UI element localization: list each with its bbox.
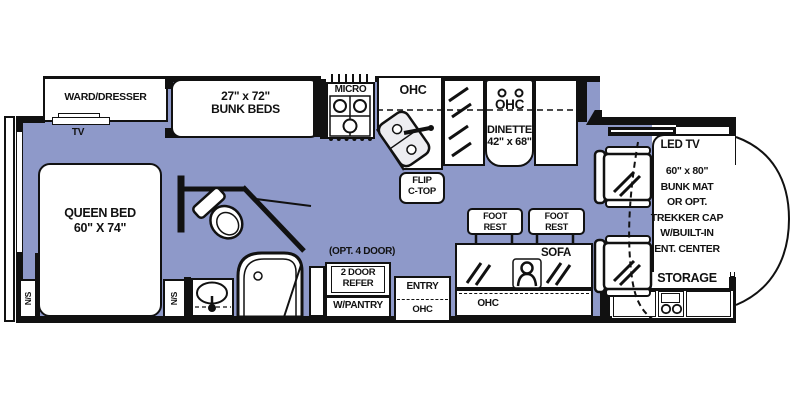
opt-4-door-label: (OPT. 4 DOOR) [314, 245, 410, 258]
ns-left-text: N/S [24, 292, 34, 305]
pantry-label: W/PANTRY [327, 299, 389, 313]
flip-line2: C-TOP [408, 187, 436, 198]
sofa-foot-right [573, 317, 587, 322]
dinette-size: 42" x 68" [487, 136, 531, 148]
kitchen-ohc-label: OHC [383, 82, 443, 98]
queen-bed [38, 163, 162, 317]
tv-shelf [52, 117, 110, 125]
wall-dinette-cab [578, 76, 587, 122]
refer-label: 2 DOOR REFER [331, 268, 385, 289]
entry-ohc-label: OHC [394, 303, 451, 317]
refer-line1: 2 DOOR [341, 268, 376, 279]
led-tv-highlight [611, 130, 673, 132]
led-tv-label: LED TV [640, 138, 720, 152]
fr-right-line1: FOOT [545, 211, 569, 222]
refer-divider [327, 295, 389, 298]
fr-left-line1: FOOT [483, 211, 507, 222]
micro-label: MICRO [326, 84, 375, 96]
bunk-name: BUNK BEDS [211, 103, 280, 116]
cab-bunk-mat-label: 60" x 80" BUNK MAT OR OPT. TREKKER CAP W… [638, 164, 736, 257]
foot-rest-right-label: FOOT REST [528, 211, 585, 232]
bunk-mat-line5: W/BUILT-IN [660, 226, 713, 242]
rear-slide-box [4, 116, 15, 322]
tv-label: TV [56, 126, 100, 140]
ns-right-text: N/S [170, 292, 180, 305]
dinette-ohc-label: OHC [485, 97, 534, 113]
fr-right-line2: REST [545, 222, 568, 233]
bunk-size: 27" x 72" [221, 90, 270, 103]
storage-bay-left [613, 291, 656, 317]
storage-bay-right [686, 291, 731, 317]
cab-nose-outline [736, 137, 789, 305]
queen-bed-size: 60" X 74" [74, 221, 126, 236]
dinette-bench-left [443, 79, 485, 166]
bunk-mat-line4: TREKKER CAP [651, 211, 724, 227]
outdoor-cooktop-tray [661, 293, 680, 303]
dinette-bench-right [534, 79, 578, 166]
bunk-mat-line1: 60" x 80" [666, 164, 708, 180]
storage-label: STORAGE [645, 270, 729, 285]
sofa-ohc-divider [459, 293, 589, 294]
bunk-beds-label: 27" x 72" BUNK BEDS [171, 90, 320, 117]
sofa-label: SOFA [526, 247, 586, 260]
bath-side-panel [309, 266, 325, 317]
queen-bed-label: QUEEN BED 60" X 74" [38, 206, 162, 235]
queen-bed-name: QUEEN BED [64, 206, 136, 221]
range-scallop [329, 137, 372, 141]
sofa-ohc-label: OHC [463, 297, 513, 311]
fr-left-line2: REST [484, 222, 507, 233]
bunk-mat-line6: ENT. CENTER [654, 242, 720, 258]
flip-c-top-label: FLIP C-TOP [399, 176, 445, 198]
cab-dash-line [676, 124, 730, 127]
entry-ohc-divider [397, 299, 448, 300]
dinette-name: DINETTE [487, 124, 532, 136]
foot-rest-left-label: FOOT REST [467, 211, 523, 232]
dinette-table [485, 79, 534, 167]
bath-divider-wall [184, 277, 191, 318]
wall-rear-top [16, 117, 23, 131]
vanity [191, 278, 234, 317]
rear-slide-opening [16, 131, 23, 253]
shower-label: SHOWER [240, 287, 298, 300]
sofa-foot-left [457, 317, 471, 322]
bunk-mat-line3: OR OPT. [667, 195, 707, 211]
nightstand-right-label: N/S [163, 279, 186, 318]
entry-label: ENTRY [394, 279, 451, 295]
rv-floorplan: WARD/DRESSER TV 27" x 72" BUNK BEDS MICR… [0, 0, 800, 400]
bunk-mat-line2: BUNK MAT [661, 180, 714, 196]
refer-line2: REFER [343, 279, 374, 290]
wall-cab-divider [600, 288, 610, 322]
dinette-label: DINETTE 42" x 68" [478, 124, 541, 149]
